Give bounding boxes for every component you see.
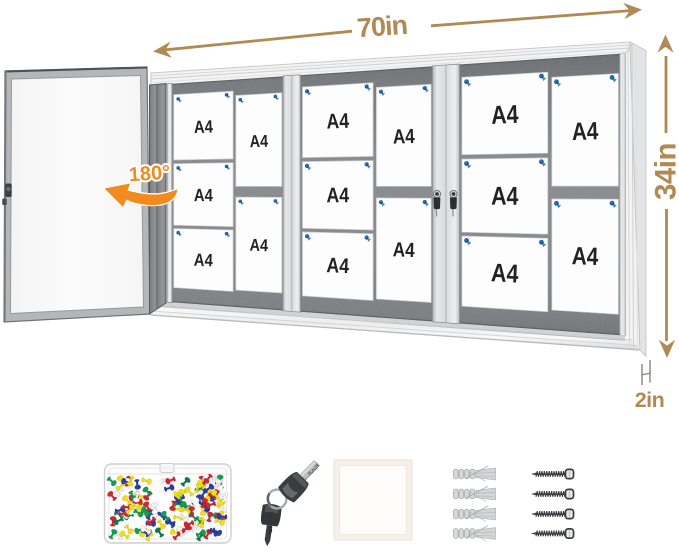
svg-text:A4: A4 bbox=[194, 250, 214, 271]
svg-text:A4: A4 bbox=[327, 184, 350, 207]
svg-text:A4: A4 bbox=[194, 116, 214, 137]
svg-text:A4: A4 bbox=[326, 110, 350, 134]
svg-text:70in: 70in bbox=[356, 10, 408, 43]
svg-text:A4: A4 bbox=[491, 183, 519, 211]
svg-text:34in: 34in bbox=[650, 143, 679, 200]
svg-text:A4: A4 bbox=[326, 254, 350, 278]
svg-text:A4: A4 bbox=[571, 117, 598, 146]
svg-text:A4: A4 bbox=[393, 238, 416, 262]
svg-text:A4: A4 bbox=[491, 101, 520, 130]
svg-text:2in: 2in bbox=[635, 388, 665, 412]
svg-text:A4: A4 bbox=[491, 259, 520, 288]
svg-text:A4: A4 bbox=[393, 125, 416, 149]
svg-text:A4: A4 bbox=[194, 185, 213, 205]
svg-text:A4: A4 bbox=[571, 242, 599, 271]
svg-text:180°: 180° bbox=[128, 162, 171, 187]
svg-text:A4: A4 bbox=[249, 131, 268, 152]
svg-text:A4: A4 bbox=[249, 235, 268, 256]
